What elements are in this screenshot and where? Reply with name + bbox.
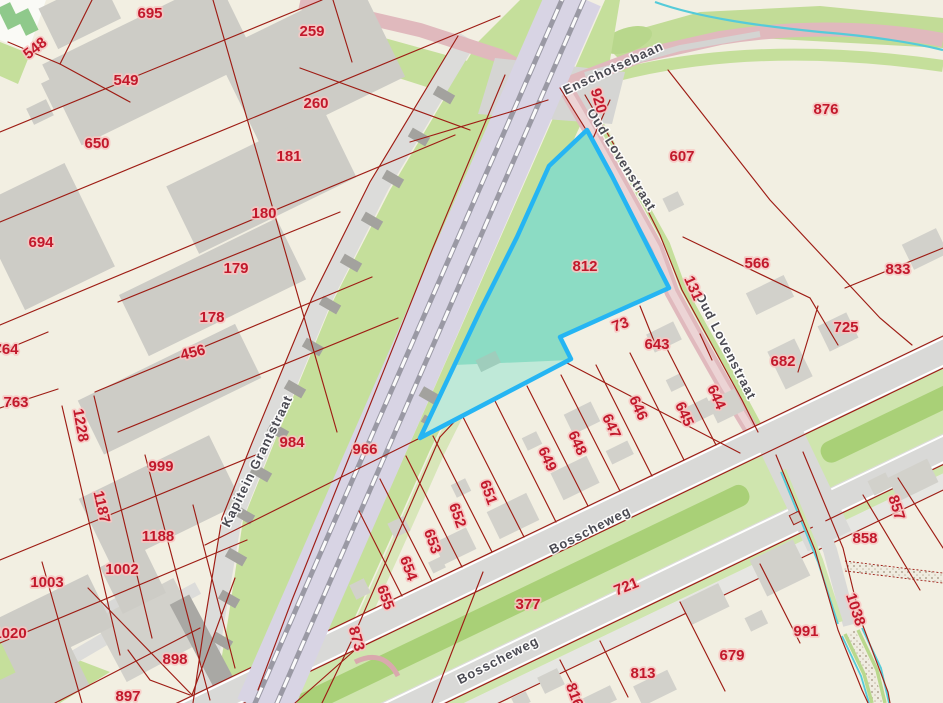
cadastral-map[interactable]: EnschotsebaanOud LovenstraatOud Lovenstr… [0, 0, 943, 703]
parcel-label-549: 549 [113, 72, 138, 89]
parcel-label-566: 566 [744, 255, 769, 272]
parcel-label-833: 833 [885, 261, 910, 278]
parcel-label-813: 813 [630, 665, 655, 682]
parcel-label-725: 725 [833, 319, 858, 336]
parcel-label-966: 966 [352, 441, 377, 458]
parcel-label-876: 876 [813, 101, 838, 118]
parcel-label-984: 984 [279, 434, 305, 451]
parcel-label-1002: 1002 [105, 561, 138, 578]
parcel-label-643: 643 [644, 336, 669, 353]
parcel-label-812: 812 [572, 258, 597, 275]
parcel-label-259: 259 [299, 23, 324, 40]
parcel-label-858: 858 [852, 530, 877, 547]
parcel-label-694: 694 [28, 234, 54, 251]
parcel-label-898: 898 [162, 651, 187, 668]
parcel-label-181: 181 [276, 148, 301, 165]
parcel-label-260: 260 [303, 95, 328, 112]
parcel-label-179: 179 [223, 260, 248, 277]
parcel-label-178: 178 [199, 309, 224, 326]
parcel-label-682: 682 [770, 353, 795, 370]
parcel-label-650: 650 [84, 135, 109, 152]
parcel-label-695: 695 [137, 5, 162, 22]
parcel-label-764: 764 [0, 341, 19, 358]
parcel-label-607: 607 [669, 148, 694, 165]
parcel-label-1020: 1020 [0, 625, 27, 642]
parcel-label-763: 763 [3, 394, 28, 411]
parcel-label-1003: 1003 [30, 574, 63, 591]
parcel-label-1188: 1188 [142, 528, 175, 545]
parcel-label-180: 180 [251, 205, 276, 222]
parcel-label-991: 991 [793, 623, 818, 640]
parcel-label-679: 679 [719, 647, 744, 664]
parcel-label-377: 377 [515, 596, 540, 613]
parcel-label-999: 999 [148, 458, 173, 475]
parcel-label-897: 897 [115, 688, 140, 703]
map-viewport[interactable]: EnschotsebaanOud LovenstraatOud Lovenstr… [0, 0, 943, 703]
